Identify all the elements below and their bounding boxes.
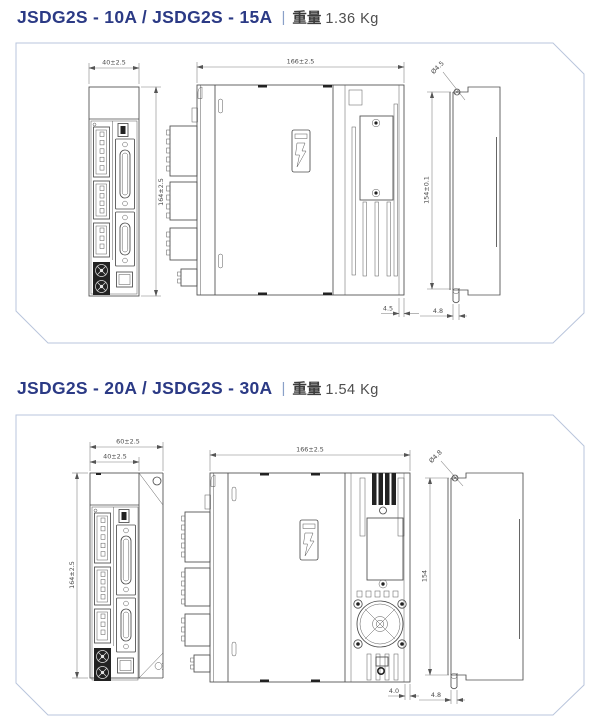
dimension-drawing-10a-15a: 40±2.5 164±2.5 xyxy=(15,42,585,344)
dim-side-gap-label: 4.0 xyxy=(389,687,399,695)
heatsink-bottom xyxy=(367,654,398,680)
drawing-panel-1: 40±2.5 164±2.5 xyxy=(15,42,585,344)
side-view: 166±2.5 4.0 xyxy=(182,446,420,701)
dim-rear-slot-label: 4.8 xyxy=(433,307,443,315)
weight-value: 1.54 Kg xyxy=(325,382,379,398)
side-terminal-blocks xyxy=(182,512,211,672)
dim-side-width-label: 166±2.5 xyxy=(287,58,315,66)
dim-rear-slot-label: 4.8 xyxy=(431,691,441,699)
side-view: 166±2.5 4.5 xyxy=(167,58,420,318)
dim-front-outer-width-label: 60±2.5 xyxy=(116,438,140,446)
dim-front-width-label: 40±2.5 xyxy=(103,453,127,461)
heatsink xyxy=(352,104,398,276)
weight-value: 1.36 Kg xyxy=(325,11,379,27)
power-connectors xyxy=(93,262,110,295)
fan-icon xyxy=(354,600,406,648)
model-name: JSDG2S - 20A / JSDG2S - 30A xyxy=(17,378,272,398)
dim-side-width-label: 166±2.5 xyxy=(296,446,324,454)
drawing-panel-2: 60±2.5 40±2.5 164±2.5 xyxy=(15,414,585,716)
cn1-connector xyxy=(116,139,135,209)
panel-border xyxy=(16,43,584,343)
front-view: 40±2.5 164±2.5 xyxy=(89,59,165,297)
model-name: JSDG2S - 10A / JSDG2S - 15A xyxy=(17,7,272,27)
cn2-connector xyxy=(116,212,135,266)
warning-lightning-icon xyxy=(300,520,318,560)
rear-view: Ø4.8 154 4.8 xyxy=(419,448,523,704)
rear-view: Ø4.5 154±0.1 4.8 xyxy=(420,59,500,320)
dim-front-height-label: 164±2.5 xyxy=(68,561,76,589)
flange-notch xyxy=(155,663,162,670)
title-separator: | xyxy=(281,9,285,26)
front-panel-face xyxy=(91,121,137,295)
dim-front-height-label: 164±2.5 xyxy=(157,178,165,206)
mounting-flange xyxy=(139,473,163,678)
front-view: 60±2.5 40±2.5 164±2.5 xyxy=(68,438,163,682)
title-separator: | xyxy=(281,380,285,397)
dim-rear-pitch-label: 154±0.1 xyxy=(423,176,431,204)
dim-rear-hole-label: Ø4.8 xyxy=(427,448,443,464)
dim-front-width-label: 40±2.5 xyxy=(102,59,126,67)
dim-rear-pitch-label: 154 xyxy=(421,570,429,582)
warning-lightning-icon xyxy=(292,130,310,172)
dim-rear-hole-label: Ø4.5 xyxy=(429,59,445,75)
section-title-2: JSDG2S - 20A / JSDG2S - 30A|重量1.54 Kg xyxy=(17,378,379,399)
datasheet-page: JSDG2S - 10A / JSDG2S - 15A|重量1.36 Kg xyxy=(0,0,600,720)
flange-hole xyxy=(153,477,161,485)
side-terminal-blocks xyxy=(167,126,198,286)
dim-side-gap-label: 4.5 xyxy=(383,305,393,313)
dimension-drawing-20a-30a: 60±2.5 40±2.5 164±2.5 xyxy=(15,414,585,716)
section-title-1: JSDG2S - 10A / JSDG2S - 15A|重量1.36 Kg xyxy=(17,7,379,28)
weight-label: 重量 xyxy=(292,382,321,398)
weight-label: 重量 xyxy=(292,11,321,27)
